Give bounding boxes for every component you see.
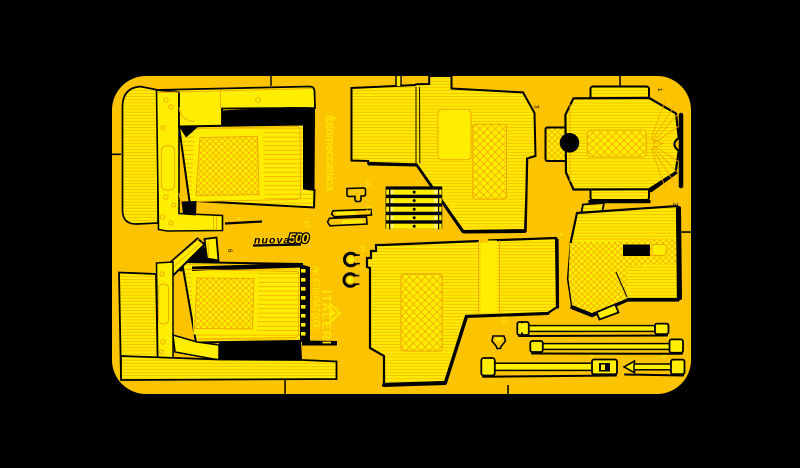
svg-text:1: 1: [656, 88, 663, 92]
svg-text:Art. 4715 FIAT 500F: Art. 4715 FIAT 500F: [311, 266, 321, 332]
svg-text:4: 4: [557, 233, 564, 237]
svg-text:500: 500: [289, 231, 310, 246]
svg-text:14: 14: [359, 245, 366, 252]
svg-text:5: 5: [235, 217, 242, 221]
svg-text:15: 15: [449, 201, 456, 208]
svg-text:fotomeccanica: fotomeccanica: [324, 115, 336, 191]
svg-text:6: 6: [226, 249, 233, 253]
svg-text:11: 11: [364, 180, 371, 187]
svg-text:3: 3: [533, 105, 540, 109]
svg-text:7: 7: [662, 336, 669, 340]
svg-text:10: 10: [500, 316, 507, 323]
svg-text:13: 13: [303, 221, 310, 229]
svg-text:12: 12: [365, 206, 372, 213]
svg-text:2: 2: [672, 203, 679, 207]
svg-text:8: 8: [660, 355, 667, 359]
